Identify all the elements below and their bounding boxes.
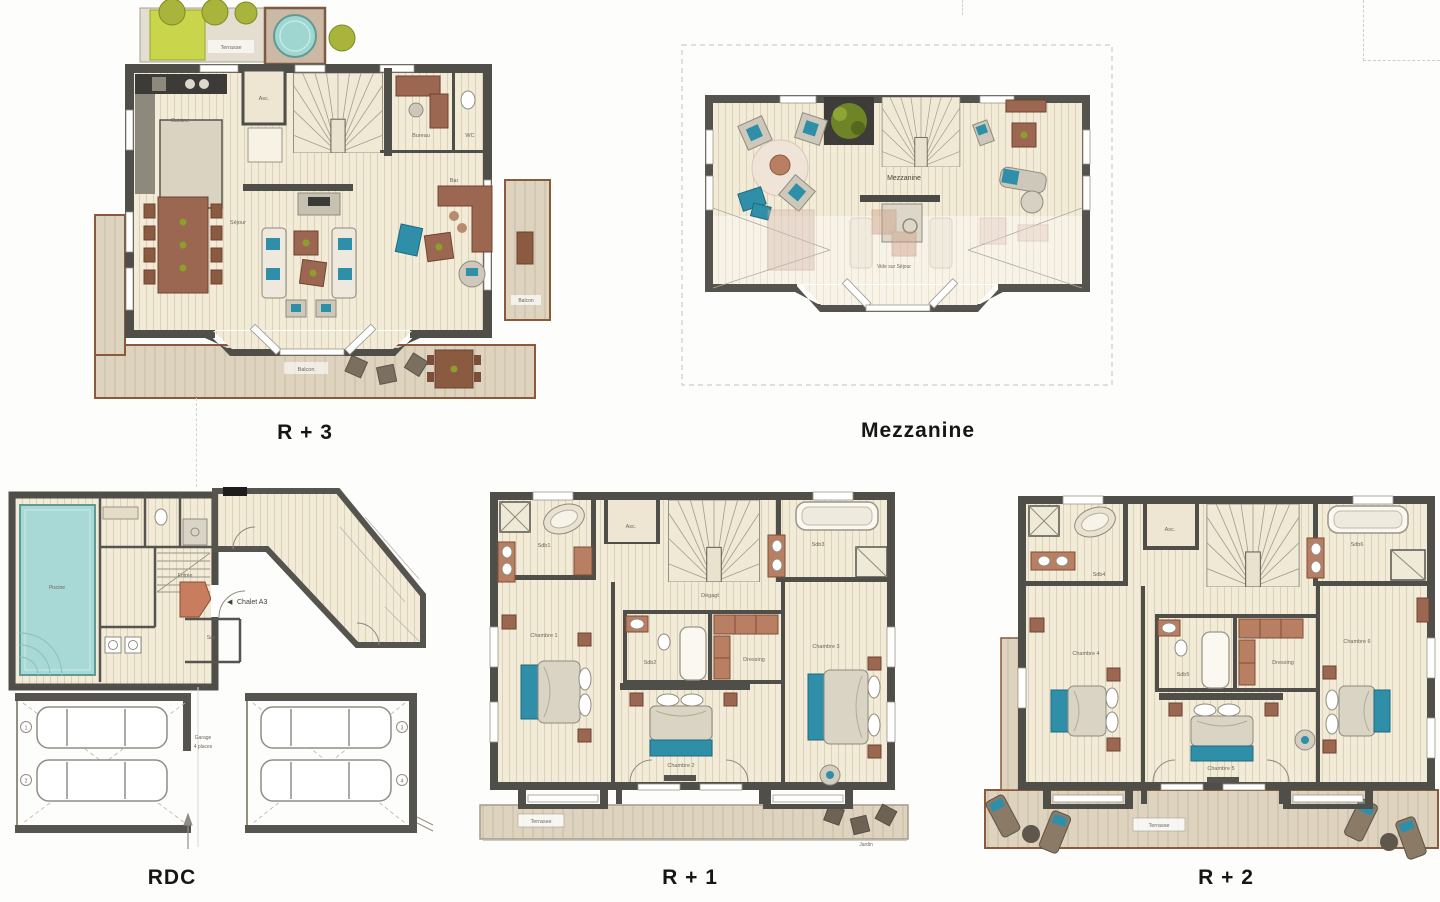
construction-line-vertical	[196, 398, 197, 487]
room-label-sas: Sas	[207, 635, 216, 641]
garage-right: 3 4	[245, 693, 433, 833]
room-label-chambre1: Chambre 1	[530, 633, 557, 639]
floor-title-r1: R + 1	[590, 866, 790, 890]
door-arrow: ◀	[227, 599, 233, 606]
room-label-sdb1: Sdb1	[538, 543, 551, 549]
floor-title-r2: R + 2	[1126, 866, 1326, 890]
room-label-sdb3: Sdb3	[812, 542, 825, 548]
room-label-mezzanine: Mezzanine	[887, 175, 921, 182]
staircase-r2	[1207, 504, 1299, 587]
car	[37, 760, 167, 801]
room-label-bureau: Bureau	[412, 133, 430, 139]
ground-line	[483, 840, 907, 841]
room-label-dressing-r1: Dressing	[743, 657, 765, 663]
parking-number-1: 1	[25, 726, 28, 732]
parking-number-4: 4	[401, 779, 404, 785]
room-label-cuisine: Cuisine	[171, 118, 189, 124]
floor-title-rdc: RDC	[72, 866, 272, 890]
room-label-sdb4: Sdb4	[1093, 572, 1106, 578]
room-label-sejour: Séjour	[230, 220, 246, 226]
room-label-balcon-bottom: Balcon	[298, 367, 315, 373]
outdoor-dining-set	[427, 350, 481, 388]
floor-title-r3: R + 3	[180, 421, 430, 445]
plan-rdc: Piscine Entrée Sas	[5, 487, 435, 852]
room-label-asc-r2: Asc.	[1165, 527, 1176, 533]
room-label-terrasse-r3: Terrasse	[220, 45, 241, 51]
r1-terrace: Terrasse	[480, 804, 908, 839]
plan-r1: Terrasse	[478, 487, 910, 849]
plan-r3: Terrasse Cuisine Asc.	[80, 0, 560, 420]
planter	[824, 97, 874, 145]
r2-elevator	[1147, 504, 1195, 546]
room-label-degagt: Dégagt	[701, 593, 719, 599]
room-label-terrasse-r2: Terrasse	[1148, 823, 1169, 829]
construction-line-corner	[1363, 0, 1440, 61]
room-label-piscine: Piscine	[49, 585, 65, 591]
staircase-r1	[668, 500, 759, 582]
mz-bay-floor	[803, 285, 995, 305]
room-label-chalet-a3: Chalet A3	[237, 599, 267, 606]
room-label-dressing-r2: Dressing	[1272, 660, 1294, 666]
entry-door: ◀ Chalet A3	[211, 585, 267, 617]
room-label-chambre4: Chambre 4	[1072, 651, 1099, 657]
car	[37, 707, 167, 748]
car	[261, 760, 391, 801]
parking-number-3: 3	[401, 726, 404, 732]
room-label-sdb5: Sdb5	[1177, 672, 1190, 678]
car	[261, 707, 391, 748]
construction-line-top	[962, 0, 963, 15]
plan-r2: Terrasse	[983, 488, 1440, 860]
elevator: Asc.	[243, 70, 285, 162]
garage-left: 1 2	[15, 693, 191, 833]
room-label-sdb2: Sdb2	[644, 660, 657, 666]
parking-number-2: 2	[25, 779, 28, 785]
floor-title-mezzanine: Mezzanine	[793, 419, 1043, 443]
r1-elevator	[608, 500, 656, 542]
room-label-terrasse-r1: Terrasse	[530, 819, 551, 825]
room-label-chambre5: Chambre 5	[1207, 766, 1234, 772]
staircase-mz	[882, 97, 960, 167]
room-label-asc-r3: Asc.	[259, 96, 270, 102]
plan-mezzanine: Vide sur Séjour Mezzanine	[680, 40, 1120, 395]
garage-label-line1: Garage	[195, 735, 212, 741]
room-label-vide: Vide sur Séjour	[877, 264, 911, 270]
room-label-balcon-right: Balcon	[518, 298, 534, 304]
staircase-r3	[294, 68, 392, 156]
r3-bay-floor	[213, 331, 412, 349]
room-label-asc-r1: Asc.	[626, 524, 637, 530]
r3-roof-terrace: Terrasse	[140, 0, 355, 64]
rdc-angled-wing	[215, 487, 423, 645]
garage-label-line2: 4 places	[194, 744, 213, 750]
room-label-chambre6: Chambre 6	[1343, 639, 1370, 645]
room-label-bar: Bar	[450, 178, 459, 184]
floor-plan-sheet: Terrasse Cuisine Asc.	[0, 0, 1440, 902]
jacuzzi	[265, 8, 325, 64]
room-label-wc: WC	[465, 133, 474, 139]
room-label-chambre2: Chambre 2	[667, 763, 694, 769]
room-label-entree: Entrée	[178, 573, 193, 579]
rdc-pool-building: Piscine Entrée Sas	[12, 495, 240, 687]
room-label-sdb6: Sdb6	[1351, 542, 1364, 548]
room-label-jardin: Jardin	[859, 842, 873, 848]
room-label-chambre3: Chambre 3	[812, 644, 839, 650]
